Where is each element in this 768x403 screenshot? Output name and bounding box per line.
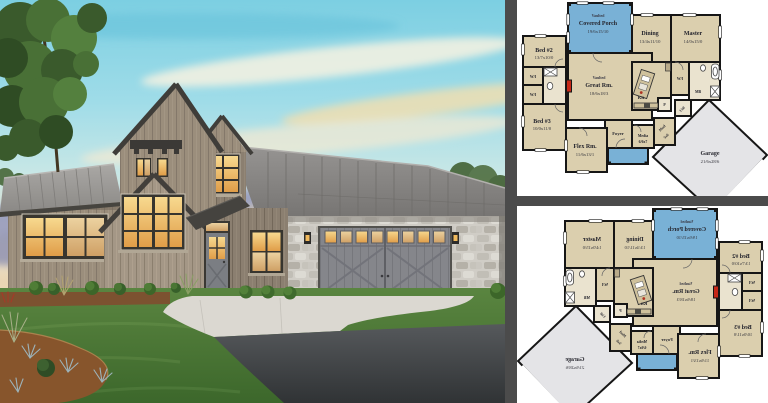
room-label-bed3-dims: 10/0x11/0 [533,126,552,131]
room-label-wi2: W/I [530,93,537,97]
room-label-mb: MB [583,296,590,300]
floor-plan: Vaulted Covered Porch 19/6x15/10 Dining … [522,2,767,196]
room-label-dining-dims: 13/4x11/10 [624,245,645,250]
room-label-great-dims: 18/6x18/3 [676,297,695,302]
room-label-flex-dims: 11/6x13/1 [690,358,709,363]
grounds [0,274,505,403]
room-label-flex: Flex Rm. [688,350,712,356]
room-label-bed3: Bed #3 [734,325,752,331]
room-label-media: Media [638,134,648,138]
room-label-wi1: W/I [530,75,537,79]
room-garage [653,100,767,196]
floor-plan-top: Vaulted Covered Porch 19/6x15/10 Dining … [517,0,768,196]
room-porch [653,209,717,259]
room-label-master: Master [684,31,703,37]
window-right-of-door [248,230,285,276]
room-label-dining-dims: 13/4x11/10 [640,39,661,44]
room-label-bed3: Bed #3 [533,119,551,125]
room-label-media-dims: 6/6x7 [638,346,647,350]
room-label-bed2: Bed #2 [535,48,553,54]
fireplace [714,286,719,298]
room-label-great: Great Rm. [585,83,613,89]
room-label-dining: Dining [626,237,643,243]
room-label-garage-dims: 21/6x28/6 [565,365,584,370]
room-label-kit: Kit [638,95,645,100]
floor-plans-column: Vaulted Covered Porch 19/6x15/10 Dining … [517,0,768,403]
room-label-master-dims: 14/0x15/0 [684,39,703,44]
room-mud [610,324,631,351]
room-label-porch-dims: 19/6x15/10 [588,29,610,34]
room-label-bed2-dims: 13/7x10/0 [535,55,554,60]
room-label-great-vaulted: Vaulted [593,76,607,80]
house-illustration [0,0,505,403]
room-label-porch-vaulted: Vaulted [592,14,606,18]
room-label-media: Media [637,340,647,344]
room-label-master: Master [583,237,602,243]
front-stoop [637,354,677,370]
room-label-master-dims: 14/0x15/0 [582,245,601,250]
room-label-kit: Kit [640,301,647,306]
room-label-porch-dims: 19/6x15/10 [676,235,698,240]
room-label-bed3-dims: 10/0x11/0 [733,332,752,337]
front-stoop [608,148,648,164]
room-label-foyer: Foyer [612,131,623,136]
room-label-wi2: W/I [748,299,755,303]
room-label-porch: Covered Porch [667,227,706,233]
room-label-great: Great Rm. [672,289,700,295]
room-label-porch: Covered Porch [579,21,618,27]
room-label-flex-dims: 11/6x13/1 [576,152,595,157]
room-garage [518,306,632,403]
room-label-great-dims: 18/6x18/3 [590,91,609,96]
room-label-dining: Dining [641,31,658,37]
house-render-panel [0,0,505,403]
floor-plan-bottom: Vaulted Covered Porch 19/6x15/10 Dining … [517,206,768,403]
room-flex [566,128,607,172]
fireplace [567,80,572,92]
room-label-garage: Garage [565,357,584,363]
fridge [615,269,620,277]
room-label-great-vaulted: Vaulted [679,282,693,286]
floor-plan-bottom-panel: Vaulted Covered Porch 19/6x15/10 Dining … [517,206,768,403]
room-label-flex: Flex Rm. [573,144,597,150]
room-label-bed2: Bed #2 [732,254,750,260]
room-label-wi1: W/I [748,281,755,285]
divider-horizontal [517,196,768,206]
room-mud [654,118,675,145]
fridge [666,63,671,71]
floor-plan: Vaulted Covered Porch 19/6x15/10 Dining … [518,208,763,403]
room-label-wi-master: W/I [677,77,684,81]
room-label-bed2-dims: 13/7x10/0 [731,261,750,266]
room-porch [568,3,632,53]
floor-plan-mirrored: Vaulted Covered Porch 19/6x15/10 Dining … [518,208,763,403]
garage-door [318,226,452,296]
floor-plan-top-panel: Vaulted Covered Porch 19/6x15/10 Dining … [517,0,768,196]
room-label-porch-vaulted: Vaulted [680,220,694,224]
room-label-wi-master: W/I [601,283,608,287]
divider-vertical [505,0,517,403]
room-label-media-dims: 6/6x7 [639,140,648,144]
room-label-mb: MB [695,90,702,94]
collage: Vaulted Covered Porch 19/6x15/10 Dining … [0,0,768,403]
room-label-garage: Garage [701,151,720,157]
room-flex [678,334,719,378]
gable-bracket-shelf [130,140,182,149]
room-label-foyer: Foyer [661,337,672,342]
front-gable-windows [118,194,188,253]
room-label-garage-dims: 21/6x28/6 [701,159,720,164]
left-wing-windows [20,214,110,262]
